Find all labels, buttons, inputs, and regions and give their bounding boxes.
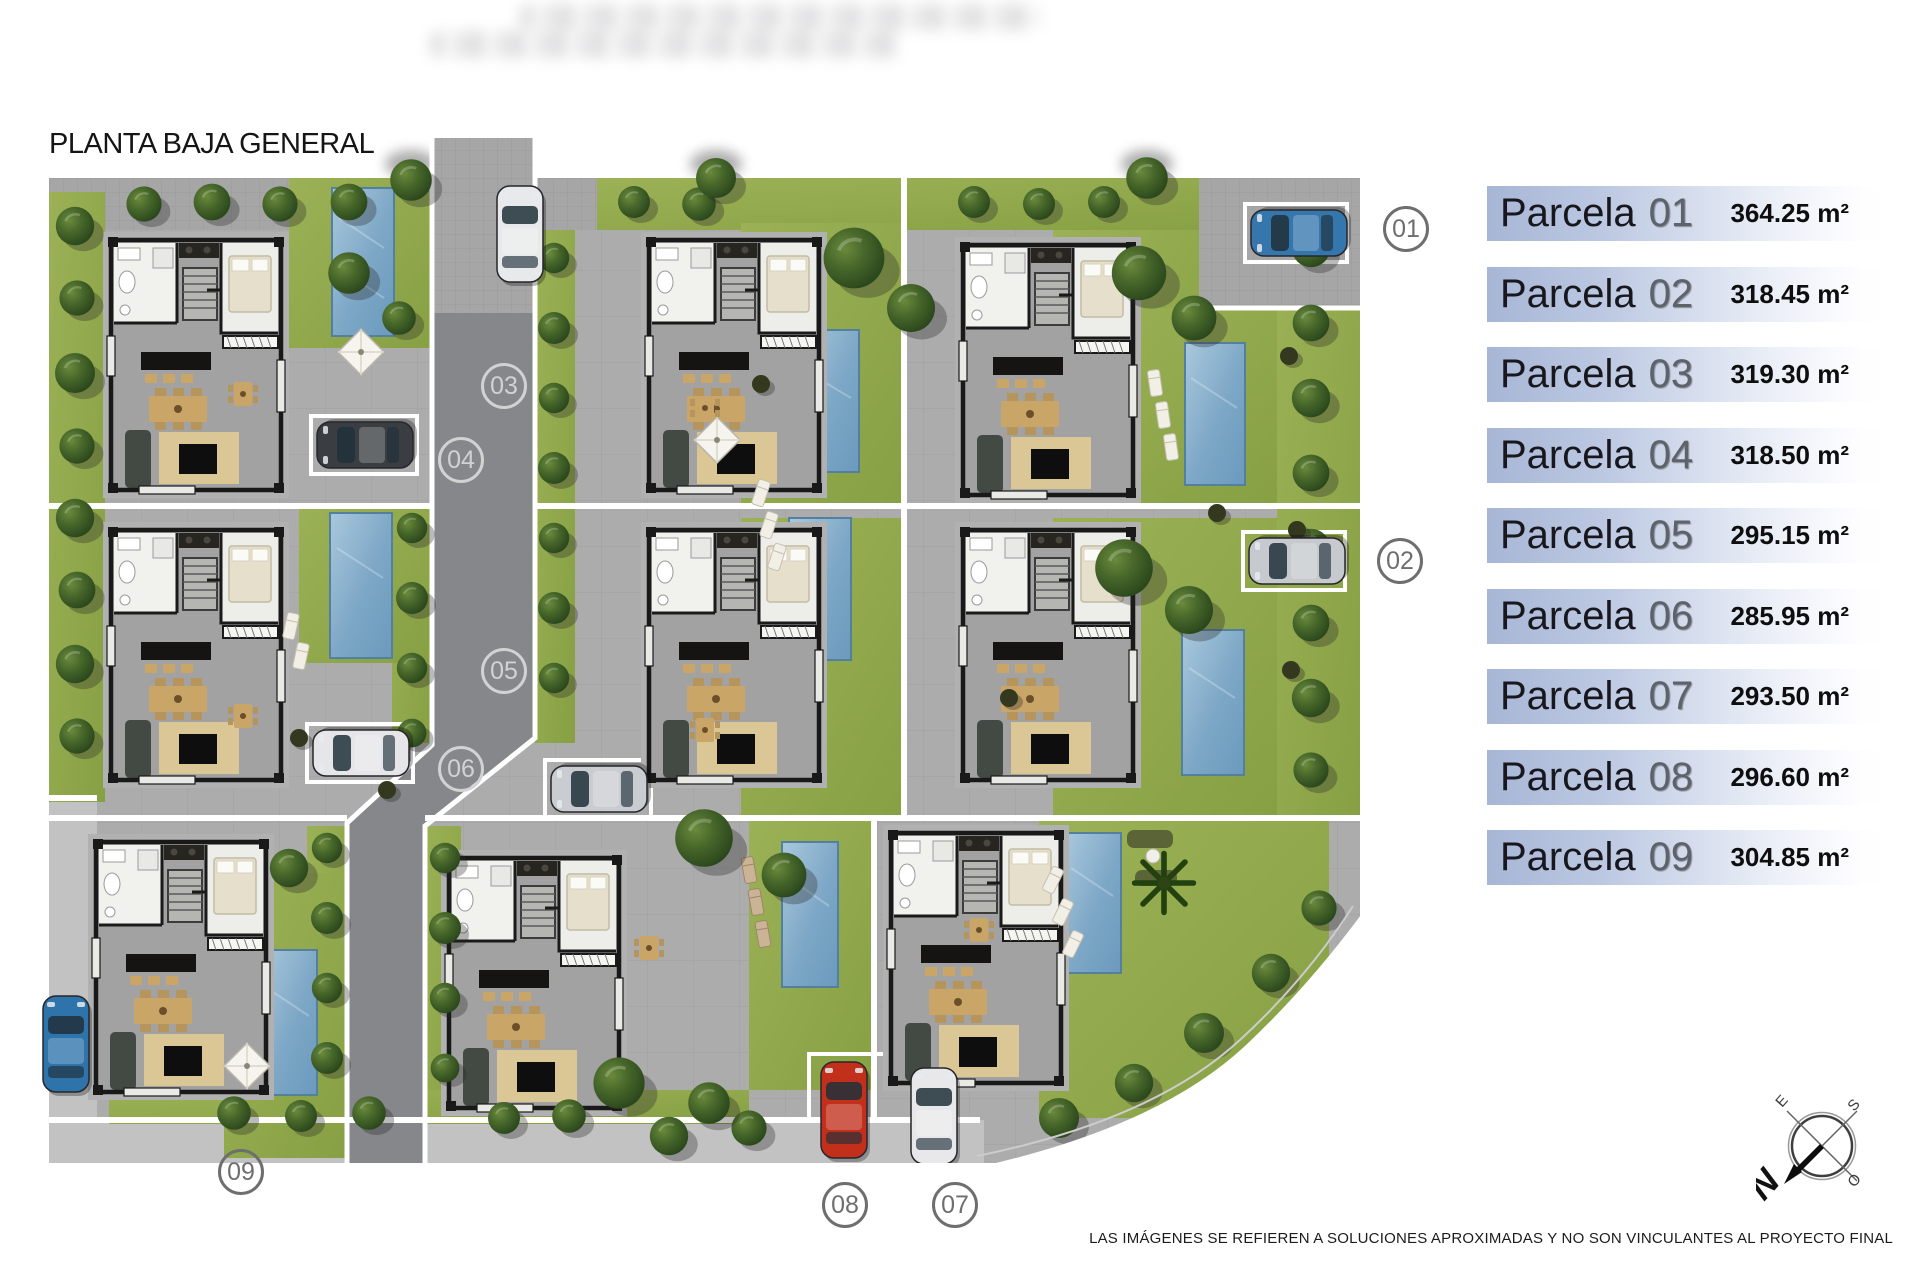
parcel-name: Parcela [1500,352,1636,397]
car-blue [43,996,92,1096]
parcel-number: 03 [1649,352,1694,397]
parcel-name: Parcela [1500,513,1636,558]
villa [103,522,289,788]
parcel-number: 08 [1649,755,1694,800]
car-white-van [911,1068,960,1163]
villa [883,825,1069,1091]
parcel-number: 05 [1649,513,1694,558]
legend-row: Parcela07293.50 m² [1487,669,1885,724]
legend-row: Parcela09304.85 m² [1487,830,1885,885]
car-silver [551,763,651,812]
parcel-area: 295.15 m² [1730,520,1849,551]
plan-marker-03: 03 [481,363,527,409]
plan-marker-02: 02 [1377,538,1423,584]
car-white [497,186,546,286]
plan-marker-01: 01 [1383,206,1429,252]
parcel-area: 296.60 m² [1730,762,1849,793]
parcel-area: 304.85 m² [1730,842,1849,873]
plan-marker-06: 06 [438,746,484,792]
parcel-name: Parcela [1500,433,1636,478]
villa [641,522,827,788]
compass-north: N [1756,1160,1788,1207]
parcel-name: Parcela [1500,594,1636,639]
parcel-legend: Parcela01364.25 m² Parcela02318.45 m² Pa… [1487,186,1885,911]
parcel-area: 319.30 m² [1730,359,1849,390]
compass-south: S [1844,1096,1863,1115]
parcel-name: Parcela [1500,191,1636,236]
parcel-area: 293.50 m² [1730,681,1849,712]
disclaimer-text: LAS IMÁGENES SE REFIEREN A SOLUCIONES AP… [1089,1230,1893,1247]
car-silver [1249,535,1349,584]
page-canvas: PLANTA BAJA GENERAL [0,0,1920,1280]
compass-rose: E S O N [1756,1078,1906,1218]
legend-row: Parcela01364.25 m² [1487,186,1885,241]
plan-marker-07: 07 [932,1182,978,1228]
parcel-area: 318.45 m² [1730,279,1849,310]
villa [103,232,289,498]
parcel-area: 285.95 m² [1730,601,1849,632]
parcel-number: 01 [1649,191,1694,236]
parcel-number: 07 [1649,674,1694,719]
car-blue [1251,207,1351,256]
legend-row: Parcela05295.15 m² [1487,508,1885,563]
plan-marker-08: 08 [822,1182,868,1228]
car-red [821,1062,870,1162]
parcel-number: 06 [1649,594,1694,639]
plan-marker-04: 04 [438,437,484,483]
legend-row: Parcela02318.45 m² [1487,267,1885,322]
villa [641,232,827,498]
plan-marker-05: 05 [481,648,527,694]
parcel-number: 09 [1649,835,1694,880]
parcel-name: Parcela [1500,272,1636,317]
legend-row: Parcela04318.50 m² [1487,428,1885,483]
parcel-name: Parcela [1500,835,1636,880]
blurred-watermark [430,31,900,58]
compass-east: E [1772,1092,1791,1111]
plan-marker-09: 09 [218,1149,264,1195]
parcel-number: 04 [1649,433,1694,478]
parcel-number: 02 [1649,272,1694,317]
site-plan [39,138,1360,1163]
car-white [313,727,413,776]
compass-west: O [1844,1171,1864,1191]
parcel-area: 318.50 m² [1730,440,1849,471]
car-dark-suv [317,419,417,468]
legend-row: Parcela06285.95 m² [1487,589,1885,644]
legend-row: Parcela08296.60 m² [1487,750,1885,805]
parcel-area: 364.25 m² [1730,198,1849,229]
parcel-name: Parcela [1500,674,1636,719]
blurred-watermark [520,4,1040,30]
parcel-name: Parcela [1500,755,1636,800]
legend-row: Parcela03319.30 m² [1487,347,1885,402]
